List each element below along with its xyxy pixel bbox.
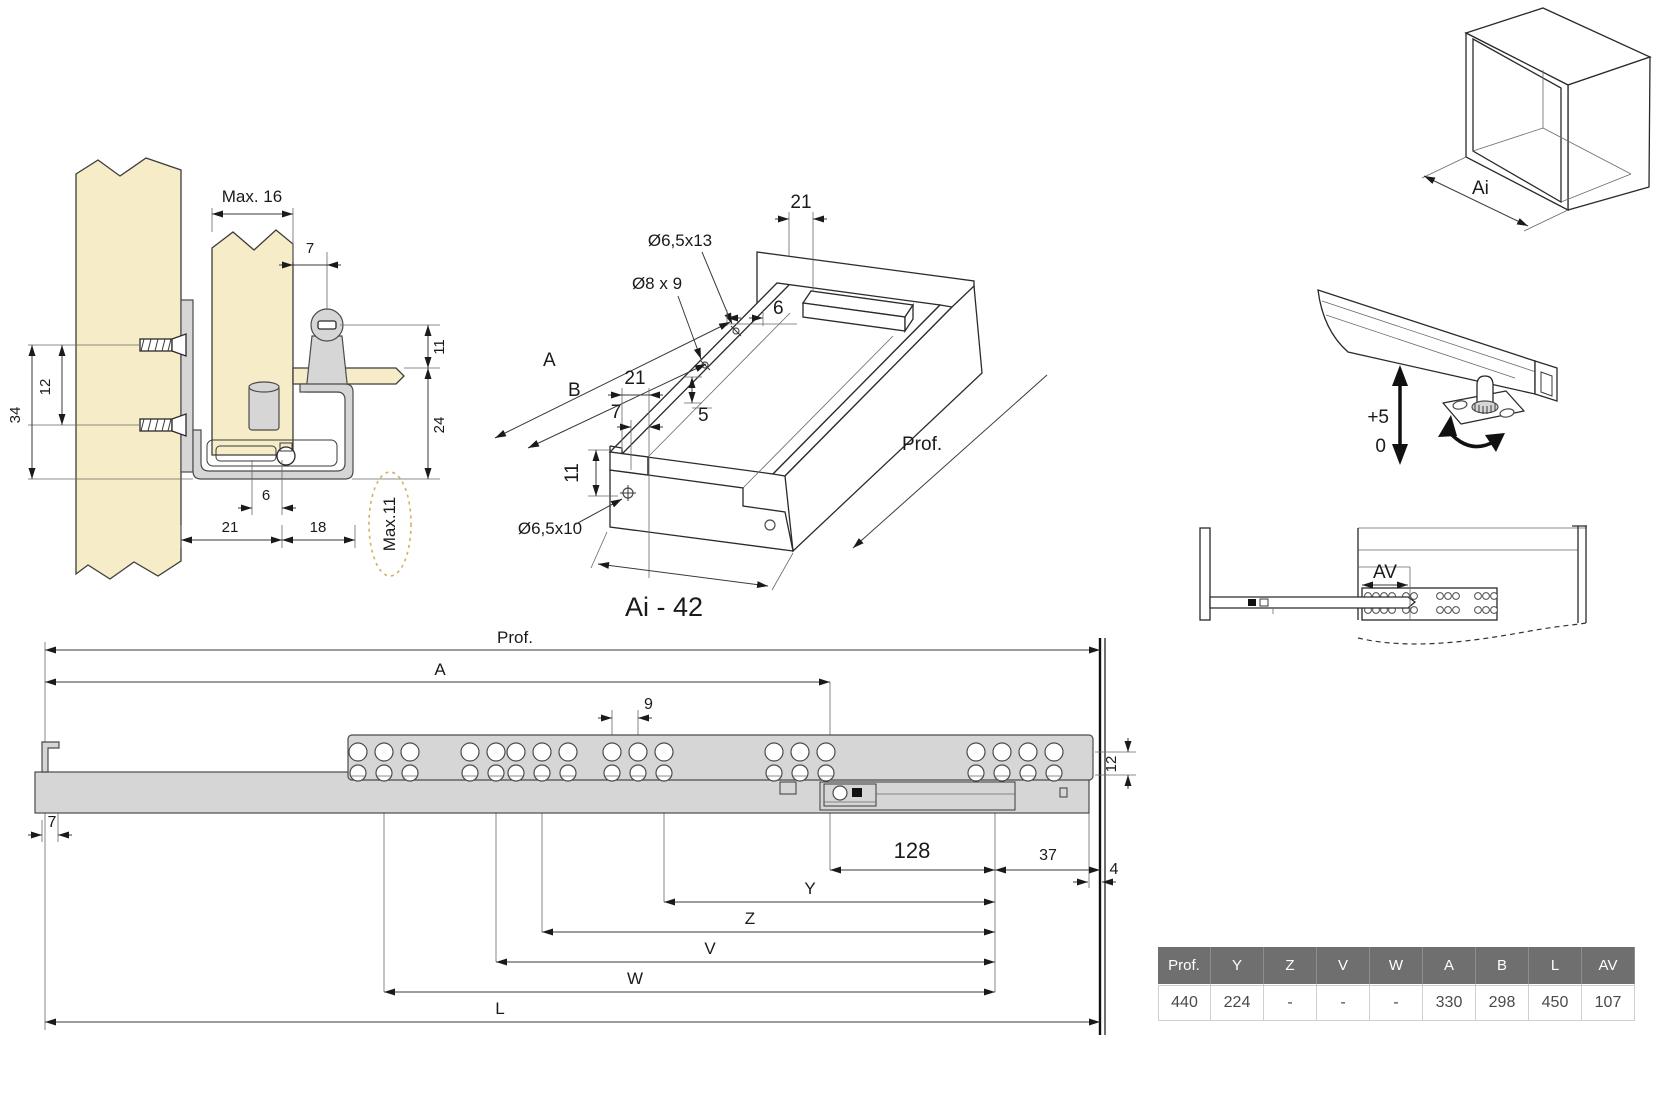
- dim-6: 6: [262, 487, 270, 504]
- vertical-adjust-arrow-icon: [1392, 365, 1408, 465]
- spec-value-cell: 440: [1158, 985, 1211, 1021]
- dim-W: W: [627, 969, 643, 988]
- dim-9: 9: [644, 696, 653, 713]
- dim-V: V: [704, 939, 716, 958]
- mounting-plate: [181, 300, 193, 472]
- spec-table: Prof. Y Z V W A B L AV 440 224 - - - 330…: [1158, 947, 1635, 1021]
- dim-12: 12: [1103, 756, 1120, 773]
- dim-21: 21: [222, 519, 239, 536]
- dim-6: 6: [773, 298, 784, 319]
- side-view-drawing: Prof. A 9 128 37 Y Z V W L 12 4: [10, 630, 1140, 1050]
- spec-sheet: Max. 16 7 12 34 11 24 6 21 18 Max.11: [0, 0, 1676, 1108]
- dim-24: 24: [431, 417, 448, 434]
- dim-11: 11: [562, 463, 583, 483]
- cabinet-box-drawing: Ai: [1310, 0, 1676, 250]
- slide-rail: [1318, 290, 1535, 394]
- dim-B: B: [568, 380, 581, 401]
- dim-A: A: [543, 350, 556, 371]
- dim-5: 5: [698, 405, 709, 426]
- width-formula: Ai - 42: [625, 592, 703, 622]
- spec-header-cell: L: [1529, 947, 1582, 985]
- cross-section-drawing: Max. 16 7 12 34 11 24 6 21 18 Max.11: [0, 140, 470, 600]
- spec-value-cell: -: [1317, 985, 1370, 1021]
- dim-Y: Y: [804, 879, 815, 898]
- dim-Z: Z: [745, 909, 755, 928]
- bracket-detail-drawing: +5 0: [1205, 255, 1676, 490]
- dim-max16: Max. 16: [222, 187, 282, 206]
- spec-value-cell: -: [1370, 985, 1423, 1021]
- spec-value-cell: 298: [1476, 985, 1529, 1021]
- dim-7: 7: [48, 814, 57, 831]
- spec-header-cell: A: [1423, 947, 1476, 985]
- dim-7: 7: [611, 402, 622, 423]
- spec-header-cell: B: [1476, 947, 1529, 985]
- spec-value-cell: -: [1264, 985, 1317, 1021]
- spec-header-cell: AV: [1582, 947, 1635, 985]
- spec-header-cell: Prof.: [1158, 947, 1211, 985]
- extension-view-drawing: AV: [1110, 490, 1676, 675]
- cabinet-front-plane: [1100, 638, 1105, 1035]
- dim-12: 12: [37, 379, 54, 396]
- dim-4: 4: [1110, 861, 1119, 878]
- front-catch: [306, 309, 348, 392]
- spec-header-cell: Y: [1211, 947, 1264, 985]
- spec-value-cell: 224: [1211, 985, 1264, 1021]
- front-panel: [1200, 528, 1210, 620]
- spec-header-cell: V: [1317, 947, 1370, 985]
- drill-front-label: Ø6,5x10: [518, 519, 582, 538]
- dim-21-top: 21: [790, 192, 811, 213]
- spec-value-cell: 450: [1529, 985, 1582, 1021]
- dim-21: 21: [624, 368, 645, 389]
- spec-value-cell: 107: [1582, 985, 1635, 1021]
- dim-128: 128: [894, 838, 931, 863]
- dim-37: 37: [1039, 847, 1057, 864]
- dim-prof: Prof.: [902, 434, 942, 455]
- dim-max11: Max.11: [380, 497, 399, 552]
- dim-AV: AV: [1373, 562, 1397, 583]
- break-line: [1358, 623, 1586, 644]
- adjust-plus-label: +5: [1367, 407, 1389, 428]
- spec-header-cell: Z: [1264, 947, 1317, 985]
- dim-18: 18: [310, 519, 327, 536]
- dim-7: 7: [306, 240, 314, 257]
- drill-top-label: Ø6,5x13: [648, 231, 712, 250]
- drill-mid-label: Ø8 x 9: [632, 274, 682, 293]
- adjust-zero-label: 0: [1375, 436, 1386, 457]
- dim-L: L: [495, 999, 504, 1018]
- dim-A: A: [434, 660, 446, 679]
- dim-prof: Prof.: [497, 630, 533, 647]
- spec-header-cell: W: [1370, 947, 1423, 985]
- dim-11: 11: [431, 339, 448, 355]
- dim-34: 34: [7, 407, 24, 424]
- front-hook: [42, 742, 59, 772]
- drawer-front-face: [610, 470, 793, 551]
- spec-value-cell: 330: [1423, 985, 1476, 1021]
- iso-drawer-drawing: 21 Ø6,5x13 Ø8 x 9 6 A B 21 7 5 11 Ø: [450, 140, 1100, 625]
- rail-tube-end: [1535, 361, 1557, 401]
- cabinet-side-panel: [76, 158, 181, 579]
- dim-Ai: Ai: [1472, 178, 1489, 199]
